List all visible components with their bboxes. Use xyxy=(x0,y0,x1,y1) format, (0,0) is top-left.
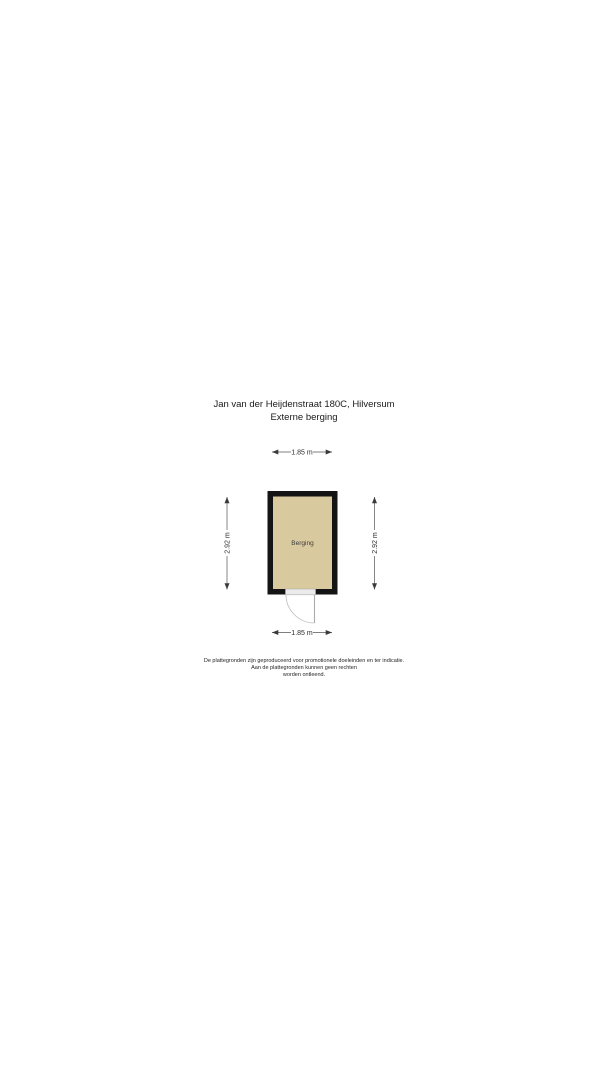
door xyxy=(286,589,316,623)
dimension-top-label: 1.85 m xyxy=(291,450,313,457)
room-berging: Berging xyxy=(268,491,338,595)
disclaimer-block: De plattegronden zijn geproduceerd voor … xyxy=(0,658,608,680)
door-swing-arc xyxy=(286,595,315,624)
dimension-right: 2.92 m xyxy=(372,497,379,590)
dimension-left-label: 2.92 m xyxy=(225,532,232,554)
dimension-right-label: 2.92 m xyxy=(372,532,379,554)
dimension-bottom-label: 1.85 m xyxy=(291,630,313,637)
dimension-bottom: 1.85 m xyxy=(272,630,332,637)
disclaimer-line-3: worden ontleend. xyxy=(0,672,608,679)
page-canvas: Jan van der Heijdenstraat 180C, Hilversu… xyxy=(0,0,608,1080)
disclaimer-line-2: Aan de plattegronden kunnen geen rechten xyxy=(0,665,608,672)
room-label: Berging xyxy=(291,540,314,547)
dimension-top: 1.85 m xyxy=(272,450,332,457)
door-threshold xyxy=(286,589,316,595)
disclaimer-line-1: De plattegronden zijn geproduceerd voor … xyxy=(0,658,608,665)
dimension-left: 2.92 m xyxy=(225,497,232,590)
floorplan-svg: 1.85 m Berging 2.92 m 2.92 m xyxy=(0,0,608,1080)
